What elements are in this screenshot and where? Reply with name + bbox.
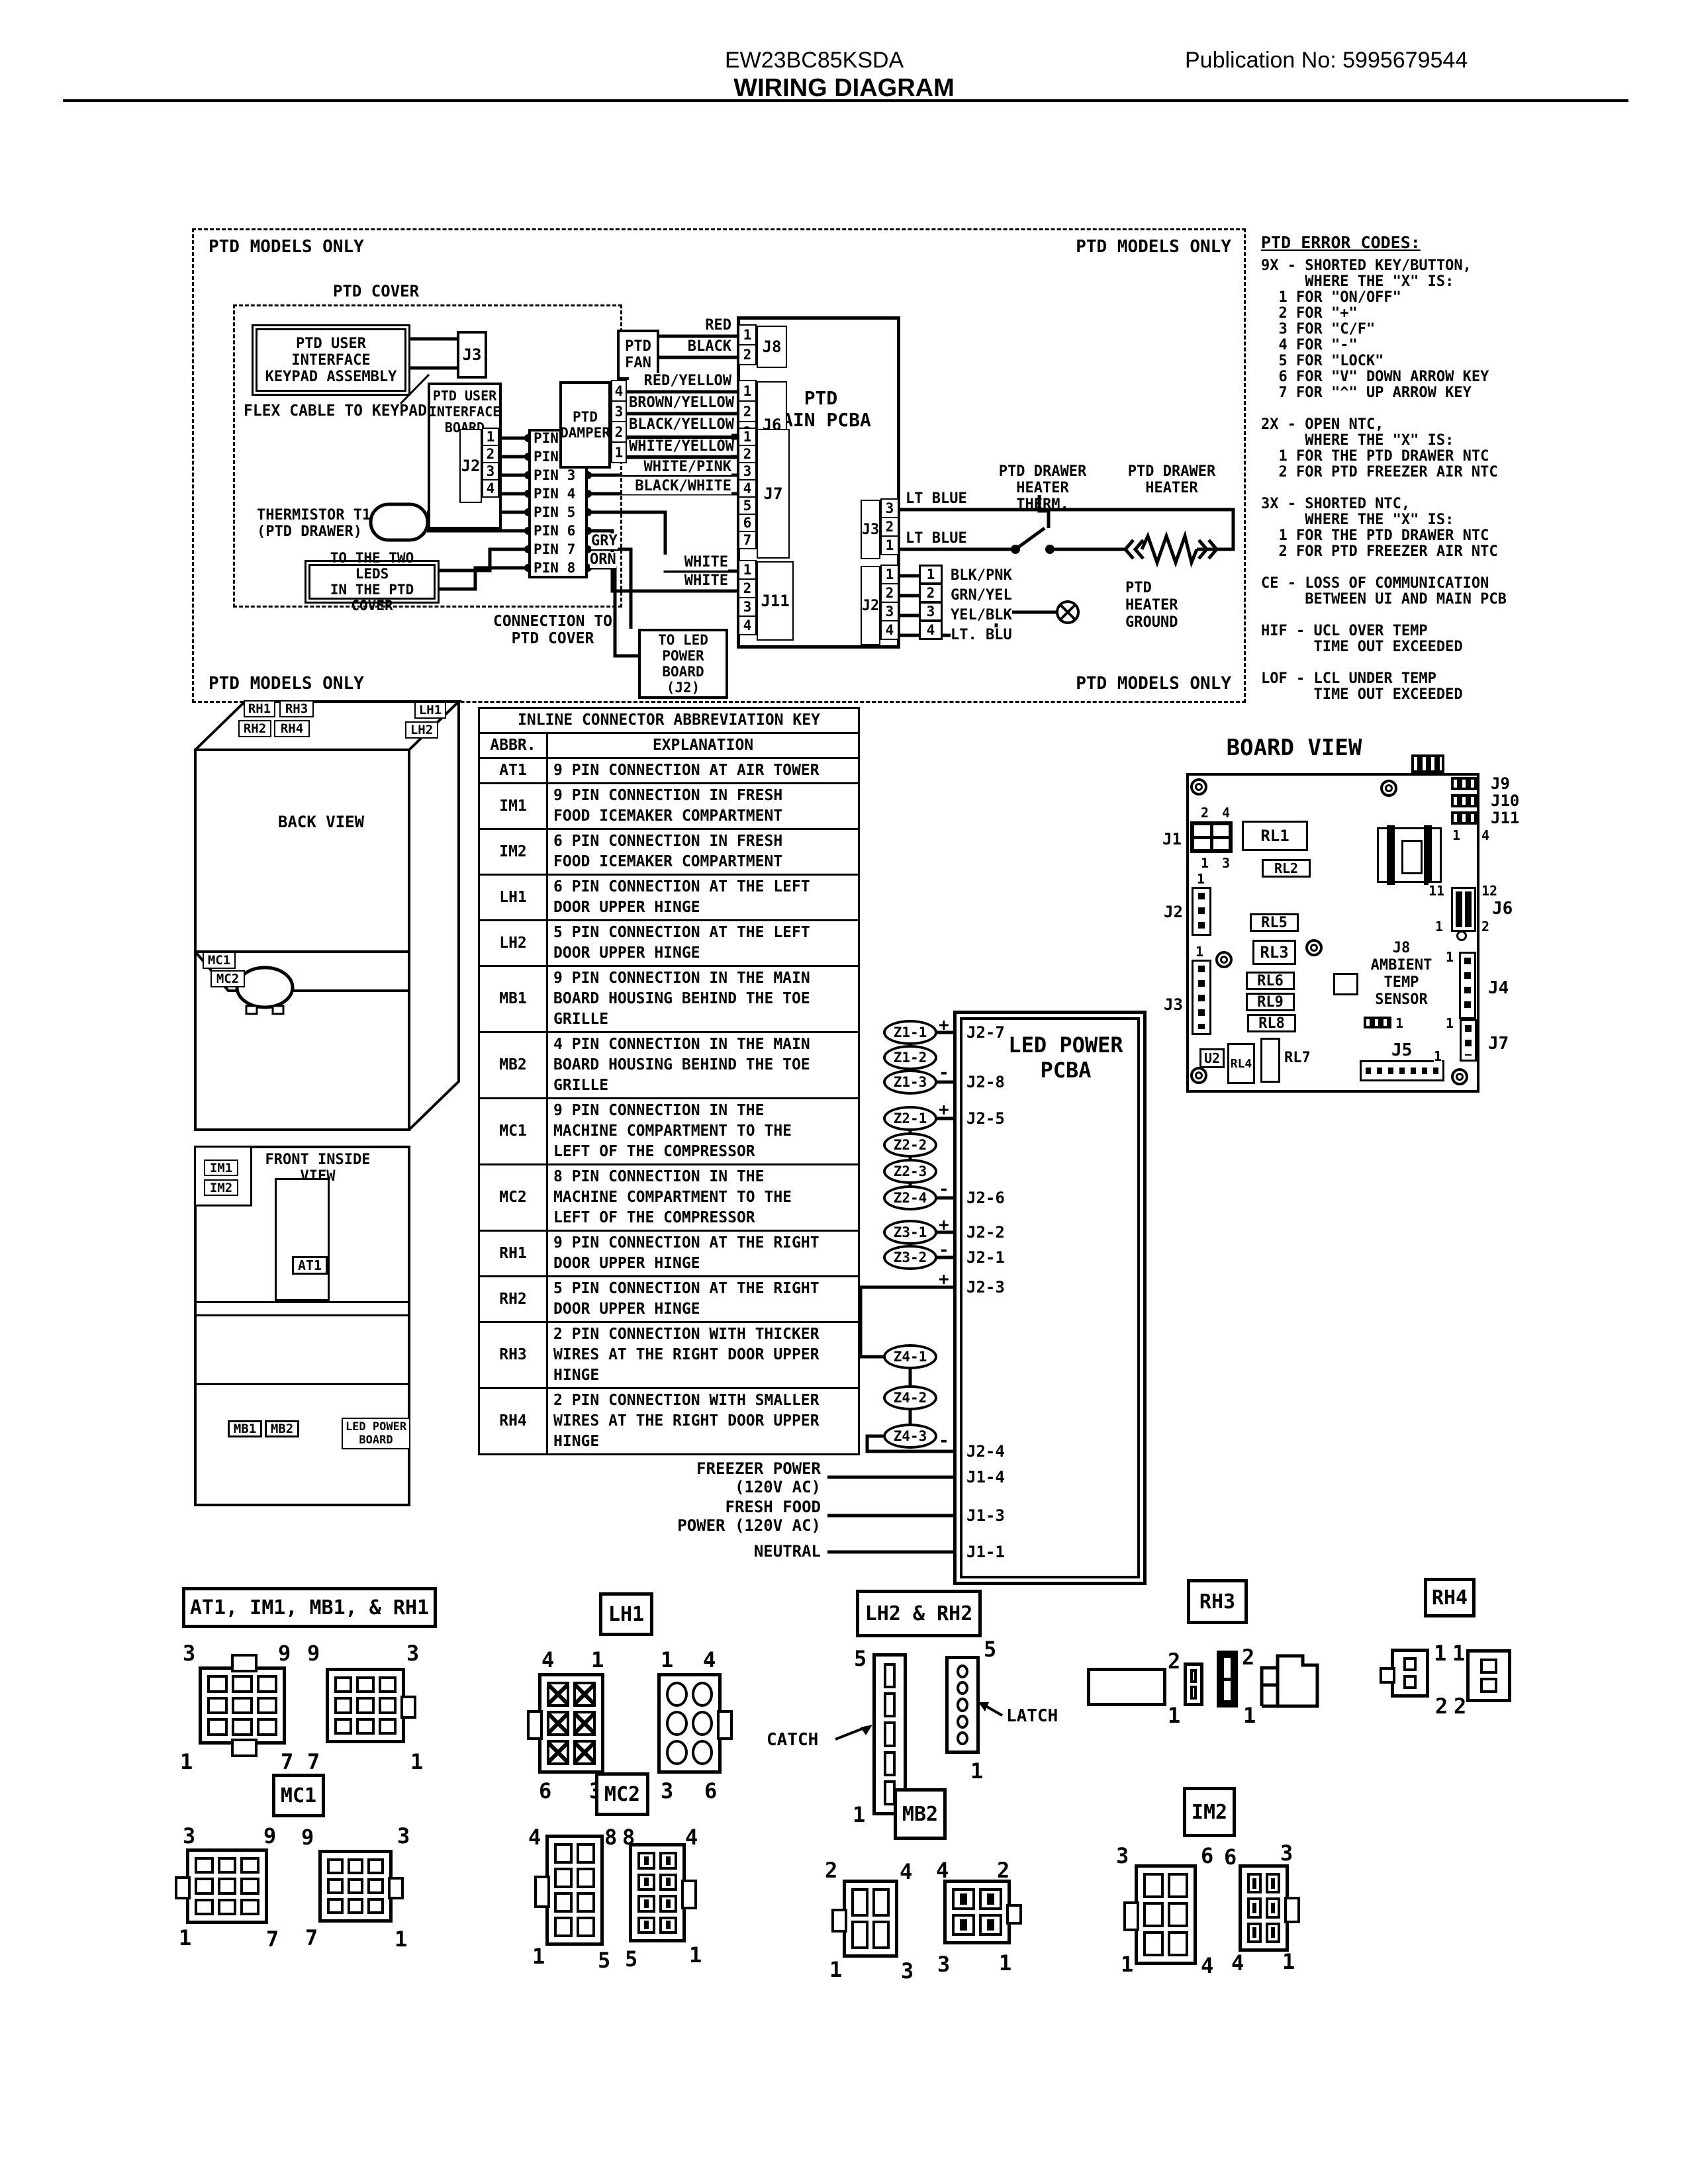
- explanation-cell: 4 PIN CONNECTION IN THE MAIN BOARD HOUSI…: [547, 1032, 859, 1099]
- j2-ui-label: J2: [459, 429, 482, 503]
- back-label-mc2: MC2: [211, 970, 245, 987]
- connector-im2-rear: [1239, 1864, 1289, 1952]
- j2-pcba-label: J2: [861, 566, 880, 645]
- mounting-hole-icon: [1215, 951, 1233, 968]
- pin-number: 1: [829, 1959, 842, 1980]
- port-j2-8: J2-8: [966, 1073, 1005, 1091]
- explanation-cell: 2 PIN CONNECTION WITH THICKER WIRES AT T…: [547, 1322, 859, 1388]
- j11-pin: 2: [738, 578, 757, 598]
- j7-board-connector: [1460, 1019, 1477, 1062]
- pin-cavity: [1168, 1931, 1188, 1956]
- ptd-keypad-assembly: PTD USER INTERFACE KEYPAD ASSEMBLY: [252, 324, 410, 396]
- transformer: [1377, 827, 1442, 883]
- front-divider-3: [194, 1383, 410, 1385]
- polarity-plus-1: +: [939, 1015, 949, 1035]
- pin-cavity: [554, 1892, 573, 1913]
- pin-cavity: [1168, 1873, 1188, 1898]
- pin-cavity: [240, 1857, 259, 1874]
- j6-pin-11: 11: [1429, 883, 1444, 899]
- figure-label-lh2-rh2: LH2 & RH2: [856, 1590, 982, 1637]
- connector-mc1-rear: [318, 1850, 393, 1923]
- pin-cavity: [637, 1852, 655, 1870]
- pin-number: 1: [970, 1760, 983, 1782]
- damper-pin: 1: [611, 441, 627, 463]
- thermistor-label: THERMISTOR T1 (PTD DRAWER): [257, 507, 371, 540]
- pin-number: 1: [180, 1751, 193, 1772]
- pin-number: 1: [1168, 1705, 1180, 1726]
- polarity-minus-2: -: [939, 1179, 949, 1199]
- pin-cavity: [851, 1921, 868, 1949]
- pin-cavity: [232, 1675, 252, 1693]
- abbr-cell: RH1: [479, 1231, 547, 1277]
- pin-cavity: [348, 1858, 364, 1874]
- pin-cavity: [659, 1895, 677, 1913]
- pin-number: 2: [1454, 1696, 1466, 1717]
- pin-cavity: [195, 1899, 214, 1915]
- connection-to-cover-label: CONNECTION TO PTD COVER: [490, 613, 616, 647]
- connector-mc2-rear: [629, 1843, 686, 1942]
- pin-label: PIN 5: [531, 503, 575, 522]
- j2-wire-block-pin: 2: [919, 583, 943, 603]
- pin-cavity: [207, 1697, 228, 1715]
- table-row: LH2 5 PIN CONNECTION AT THE LEFT DOOR UP…: [479, 921, 859, 966]
- pin-cavity: [1213, 839, 1229, 850]
- explanation-cell: 6 PIN CONNECTION AT THE LEFT DOOR UPPER …: [547, 875, 859, 921]
- pin-number: 2: [997, 1860, 1009, 1881]
- wire-white-yellow: WHITE/YELLOW: [629, 439, 731, 455]
- ptd-models-only-bl: PTD MODELS ONLY: [209, 674, 364, 694]
- explanation-cell: 2 PIN CONNECTION WITH SMALLER WIRES AT T…: [547, 1388, 859, 1455]
- table-row: RH3 2 PIN CONNECTION WITH THICKER WIRES …: [479, 1322, 859, 1388]
- j9-connector: [1451, 777, 1477, 790]
- damper-pin: 4: [611, 380, 627, 402]
- zone-z1-1: Z1-1: [883, 1020, 937, 1045]
- j3-board-pin1: 1: [1196, 944, 1203, 960]
- pin-cavity: [692, 1711, 714, 1736]
- pin-number: 7: [281, 1751, 293, 1772]
- j8-pin: 2: [738, 344, 757, 365]
- damper-pin: 3: [611, 400, 627, 422]
- j11-pin: 1: [738, 560, 757, 580]
- j8-label: J8: [757, 326, 787, 368]
- pin-number: 1: [661, 1649, 673, 1670]
- j3-pcba-label: J3: [861, 500, 880, 559]
- wire-brown-yellow: BROWN/YELLOW: [629, 395, 731, 411]
- explanation-column-header: EXPLANATION: [547, 733, 859, 758]
- pin-number: 4: [685, 1827, 698, 1848]
- j2-ui-pin: 2: [482, 445, 499, 463]
- pin-label: PIN 7: [531, 540, 575, 559]
- pin-number: 6: [704, 1780, 717, 1801]
- transformer-core: [1401, 840, 1423, 874]
- pin-cavity: [554, 1868, 573, 1888]
- ambient-sensor-label: J8 AMBIENT TEMP SENSOR: [1362, 940, 1440, 1009]
- pin-number: 4: [703, 1649, 716, 1670]
- j2-ui-pin: 3: [482, 462, 499, 480]
- freezer-power-label: FREEZER POWER (120V AC): [665, 1459, 821, 1496]
- relay-rl7-body: [1260, 1038, 1280, 1083]
- pin-cavity: [195, 1878, 214, 1894]
- pin-cavity: [957, 1731, 968, 1745]
- mounting-hole-icon: [1380, 780, 1397, 797]
- relay-rl2: RL2: [1262, 859, 1311, 878]
- pin-number: 9: [278, 1643, 291, 1664]
- figure-label-mb2: MB2: [894, 1788, 947, 1840]
- table-row: IM2 6 PIN CONNECTION IN FRESH FOOD ICEMA…: [479, 829, 859, 875]
- wire-black-yellow: BLACK/YELLOW: [629, 417, 731, 433]
- table-row: IM1 9 PIN CONNECTION IN FRESH FOOD ICEMA…: [479, 784, 859, 829]
- connector-lh1-rear: [657, 1673, 722, 1774]
- connector-rh3-a: [1184, 1662, 1203, 1706]
- abbr-cell: AT1: [479, 758, 547, 784]
- j7-label: J7: [757, 429, 790, 559]
- figure-label-at1-im1-mb1-rh1: AT1, IM1, MB1, & RH1: [182, 1587, 437, 1628]
- mounting-hole-icon: [1305, 939, 1323, 956]
- pin-cavity: [195, 1857, 214, 1874]
- pin-number: 3: [183, 1643, 195, 1664]
- gry-wire-label: GRY: [591, 533, 618, 549]
- pin-number: 1: [179, 1927, 191, 1948]
- polarity-minus-3: -: [939, 1240, 949, 1260]
- pin-cavity: [952, 1914, 975, 1936]
- model-number: EW23BC85KSDA: [725, 48, 904, 73]
- pin-cavity: [957, 1681, 968, 1695]
- board-view-title: BOARD VIEW: [1211, 735, 1377, 761]
- pin-cavity: [957, 1698, 968, 1711]
- connector-mc2-front: [545, 1835, 604, 1946]
- j3-board-connector: [1192, 960, 1211, 1035]
- pin-number: 9: [307, 1643, 320, 1664]
- pin-number: 6: [539, 1780, 551, 1801]
- pin-number: 3: [1116, 1845, 1129, 1866]
- led-power-pcba-title: LED POWER PCBA: [993, 1032, 1139, 1083]
- pin-cavity: [547, 1711, 569, 1736]
- abbr-cell: IM2: [479, 829, 547, 875]
- figure-label-mc1: MC1: [272, 1774, 325, 1817]
- pin-number: 3: [183, 1825, 195, 1846]
- abbr-column-header: ABBR.: [479, 733, 547, 758]
- explanation-cell: 9 PIN CONNECTION IN FRESH FOOD ICEMAKER …: [547, 784, 859, 829]
- wire-lt-blu: LT. BLU: [951, 627, 1012, 643]
- pin-number: 7: [305, 1927, 318, 1948]
- back-view-title: BACK VIEW: [278, 813, 364, 831]
- connector-at1-rear: [326, 1668, 405, 1743]
- j2-wire-block-pin: 4: [919, 620, 943, 640]
- pin-cavity: [232, 1697, 252, 1715]
- pin-cavity: [327, 1878, 344, 1894]
- j2-wire-block: 1234: [919, 566, 943, 640]
- pin-column: [1465, 891, 1472, 927]
- pin-cavity: [356, 1676, 374, 1693]
- front-divider-2: [194, 1314, 410, 1316]
- back-label-rh2: RH2: [238, 720, 271, 737]
- explanation-cell: 9 PIN CONNECTION IN THE MAIN BOARD HOUSI…: [547, 966, 859, 1032]
- pin-cavity: [257, 1697, 277, 1715]
- transformer-bar: [1424, 825, 1432, 885]
- zone-z2-2: Z2-2: [883, 1132, 937, 1158]
- pin-label: PIN 8: [531, 559, 575, 577]
- pin-number: 3: [937, 1954, 950, 1975]
- drawer-heater-label: PTD DRAWER HEATER: [1119, 463, 1225, 496]
- pin-cavity: [872, 1921, 890, 1949]
- pin-cavity: [1247, 1873, 1262, 1893]
- explanation-cell: 9 PIN CONNECTION AT AIR TOWER: [547, 758, 859, 784]
- table-row: LH1 6 PIN CONNECTION AT THE LEFT DOOR UP…: [479, 875, 859, 921]
- pin-cavity: [547, 1682, 569, 1707]
- wire-black: BLACK: [670, 339, 731, 355]
- pin-number: 1: [1452, 1643, 1465, 1664]
- abbr-cell: RH3: [479, 1322, 547, 1388]
- j7-pin: 1: [738, 428, 757, 446]
- board-3pin-connector: [1364, 1017, 1391, 1028]
- abbr-cell: MB1: [479, 966, 547, 1032]
- abbr-cell: IM1: [479, 784, 547, 829]
- figure-label-rh3: RH3: [1187, 1579, 1248, 1624]
- explanation-cell: 6 PIN CONNECTION IN FRESH FOOD ICEMAKER …: [547, 829, 859, 875]
- pin-cavity: [327, 1858, 344, 1874]
- pin-number: 1: [853, 1804, 865, 1825]
- pin-cavity: [367, 1858, 384, 1874]
- zone-z3-2: Z3-2: [883, 1245, 937, 1270]
- pin-number: 4: [528, 1827, 541, 1848]
- pin-cavity: [666, 1682, 688, 1707]
- front-label-mb1: MB1: [228, 1420, 262, 1437]
- pin-number: 3: [901, 1960, 914, 1981]
- pin-cavity: [1143, 1902, 1164, 1927]
- relay-rl7-label: RL7: [1284, 1050, 1311, 1066]
- pin-cavity: [1143, 1873, 1164, 1898]
- pin-number: 7: [266, 1929, 279, 1950]
- relay-rl8: RL8: [1247, 1014, 1296, 1032]
- ptd-damper: PTD DAMPER: [559, 381, 611, 469]
- pin-number: 4: [541, 1649, 554, 1670]
- board-j7-label: J7: [1488, 1034, 1509, 1054]
- wire-red-yellow: RED/YELLOW: [629, 373, 731, 389]
- pin-cavity: [659, 1852, 677, 1870]
- lt-blue-label-1: LT BLUE: [906, 491, 967, 507]
- icemaker-compartment: [194, 1146, 252, 1206]
- polarity-plus-4: +: [939, 1269, 949, 1289]
- connector-rh4-a: [1391, 1649, 1429, 1698]
- abbreviation-table-title: INLINE CONNECTOR ABBREVIATION KEY: [479, 708, 859, 733]
- zone-z1-3: Z1-3: [883, 1069, 937, 1095]
- pin-number: 8: [622, 1827, 635, 1848]
- pin-number: 6: [1224, 1846, 1237, 1868]
- pin-number: 4: [936, 1860, 949, 1881]
- explanation-cell: 5 PIN CONNECTION AT THE LEFT DOOR UPPER …: [547, 921, 859, 966]
- pin-number: 3: [1280, 1843, 1293, 1864]
- j11-pin-1: 1: [1452, 827, 1460, 843]
- board-ic: [1333, 973, 1358, 995]
- j8-pin: 1: [738, 324, 757, 345]
- board-j9-label: J9: [1491, 774, 1510, 793]
- j1-pin-3: 3: [1222, 855, 1230, 871]
- board-j5-label: J5: [1391, 1040, 1412, 1060]
- neutral-label: NEUTRAL: [665, 1542, 821, 1561]
- pin-number: 8: [604, 1827, 617, 1848]
- pin-cavity: [1247, 1897, 1262, 1918]
- j8-pins: 12: [738, 326, 757, 365]
- two-leds-box: TO THE TWO LEDS IN THE PTD COVER: [305, 560, 440, 604]
- j2-pcba-pin: 1: [880, 565, 899, 584]
- pin-cavity: [659, 1917, 677, 1934]
- j3-pcba-pin: 1: [880, 535, 899, 555]
- pin-number: 9: [301, 1827, 314, 1848]
- port-j1-3: J1-3: [966, 1506, 1005, 1525]
- j11-pins: 1234: [738, 561, 757, 635]
- relay-rl9: RL9: [1246, 993, 1295, 1011]
- j3-pcba-pins: 321: [880, 500, 899, 555]
- j6-pin-1: 1: [1435, 919, 1443, 934]
- j4-board-connector: [1459, 952, 1476, 1019]
- polarity-plus-2: +: [939, 1100, 949, 1120]
- figure-label-im2: IM2: [1183, 1787, 1236, 1837]
- table-row: RH4 2 PIN CONNECTION WITH SMALLER WIRES …: [479, 1388, 859, 1455]
- port-j1-1: J1-1: [966, 1543, 1005, 1561]
- mounting-hole-icon: [1451, 1068, 1468, 1085]
- explanation-cell: 9 PIN CONNECTION AT THE RIGHT DOOR UPPER…: [547, 1231, 859, 1277]
- mounting-hole-icon: [1190, 778, 1207, 796]
- connector-rh2-latch: [945, 1656, 980, 1754]
- back-label-rh1: RH1: [244, 700, 275, 717]
- fresh-food-power-label: FRESH FOOD POWER (120V AC): [665, 1498, 821, 1535]
- zone-z4-3: Z4-3: [883, 1424, 937, 1449]
- pin-cavity: [218, 1878, 237, 1894]
- pin-cavity: [573, 1740, 596, 1765]
- pin-number: 4: [1231, 1952, 1244, 1974]
- pin-cavity: [884, 1663, 896, 1688]
- back-label-rh4: RH4: [274, 720, 310, 737]
- pin-cavity: [218, 1899, 237, 1915]
- pin-number: 4: [1201, 1955, 1213, 1976]
- relay-rl5: RL5: [1250, 913, 1299, 932]
- pin-number: 1: [532, 1946, 545, 1967]
- connector-rh4-b: [1466, 1649, 1511, 1702]
- j6-pin-2: 2: [1481, 919, 1489, 934]
- pin-cavity: [577, 1843, 595, 1864]
- pin-cavity: [1143, 1931, 1164, 1956]
- front-label-im1: IM1: [204, 1160, 238, 1176]
- j3-pcba-pin: 2: [880, 517, 899, 537]
- publication-number: Publication No: 5995679544: [1185, 48, 1468, 73]
- wire-black-white: BLACK/WHITE: [622, 478, 731, 494]
- title-rule: [63, 99, 1628, 102]
- pin-cavity: [1266, 1873, 1280, 1893]
- pin-number: 1: [999, 1952, 1011, 1974]
- pin-cavity: [367, 1898, 384, 1914]
- pin-cavity: [1213, 825, 1229, 836]
- abbr-cell: LH2: [479, 921, 547, 966]
- table-row: AT1 9 PIN CONNECTION AT AIR TOWER: [479, 758, 859, 784]
- port-j2-7: J2-7: [966, 1023, 1005, 1042]
- j7-pin-1: 1: [1446, 1015, 1454, 1031]
- pin-number: 7: [307, 1751, 320, 1772]
- pin-cavity: [554, 1917, 573, 1937]
- pin-number: 1: [1121, 1954, 1133, 1975]
- pin-number: 4: [900, 1861, 912, 1882]
- j7-pin: 3: [738, 462, 757, 480]
- port-j2-3: J2-3: [966, 1278, 1005, 1297]
- pin-cavity: [1168, 1902, 1188, 1927]
- abbr-cell: RH4: [479, 1388, 547, 1455]
- connector-mc1-front: [186, 1848, 268, 1924]
- front-label-mb2: MB2: [265, 1420, 299, 1437]
- to-led-power-board-box: TO LED POWER BOARD (J2): [638, 629, 728, 699]
- wire-yel-blk: YEL/BLK: [951, 608, 1012, 623]
- ptd-cover-label: PTD COVER: [328, 282, 424, 300]
- j7-pins: 1234567: [738, 429, 757, 549]
- pin-cavity: [257, 1675, 277, 1693]
- ptd-models-only-tr: PTD MODELS ONLY: [1056, 237, 1231, 257]
- wire-grn-yel: GRN/YEL: [951, 588, 1012, 604]
- pin-cavity: [207, 1675, 228, 1693]
- relay-rl6: RL6: [1246, 972, 1295, 990]
- pin-cavity: [884, 1692, 896, 1717]
- pin-number: 6: [1201, 1845, 1213, 1866]
- pin-number: 2: [825, 1860, 837, 1881]
- pin-number: 1: [410, 1751, 423, 1772]
- pin-cavity: [637, 1895, 655, 1913]
- pin-cavity: [240, 1899, 259, 1915]
- heater-ground-label: PTD HEATER GROUND: [1125, 580, 1205, 631]
- pin-number: 5: [984, 1639, 996, 1660]
- back-label-mc1: MC1: [203, 952, 236, 969]
- pin-number: 5: [854, 1648, 867, 1669]
- j7-pin: 2: [738, 445, 757, 463]
- pin-cavity: [240, 1878, 259, 1894]
- zone-z2-4: Z2-4: [883, 1185, 937, 1210]
- pin-number: 1: [1243, 1705, 1256, 1726]
- j3-connector: J3: [457, 331, 487, 379]
- connector-at1-front: [199, 1666, 286, 1745]
- explanation-cell: 9 PIN CONNECTION IN THE MACHINE COMPARTM…: [547, 1099, 859, 1165]
- j1-connector: [1190, 821, 1233, 853]
- front-divider-1: [194, 1301, 410, 1303]
- board-j2-label: J2: [1164, 903, 1183, 921]
- connector-mb2-rear: [943, 1880, 1011, 1944]
- j10-connector: [1451, 794, 1477, 807]
- j2-board-pin1: 1: [1197, 871, 1205, 887]
- pin-cavity: [692, 1740, 714, 1765]
- chip-u2: U2: [1199, 1048, 1225, 1068]
- pin-cavity: [348, 1878, 364, 1894]
- board-top-connector: [1411, 754, 1444, 773]
- pin-cavity: [1480, 1659, 1497, 1674]
- board-3pin-1: 1: [1395, 1015, 1403, 1031]
- pin-number: 9: [263, 1825, 276, 1846]
- wire-blk-pnk: BLK/PNK: [951, 568, 1012, 584]
- j2-wire-block-pin: 3: [919, 602, 943, 621]
- j6-board-connector: [1451, 887, 1476, 932]
- error-codes-heading: PTD ERROR CODES:: [1261, 233, 1421, 252]
- air-tower: [275, 1178, 330, 1301]
- board-j10-label: J10: [1491, 792, 1519, 810]
- pin-cavity: [979, 1888, 1002, 1910]
- catch-label: CATCH: [767, 1730, 818, 1750]
- j1-pin-4: 4: [1222, 805, 1230, 821]
- connector-rh3-b: [1217, 1651, 1238, 1707]
- j2-pcba-pin: 3: [880, 602, 899, 621]
- j6-pin: 2: [738, 400, 757, 422]
- latch-label: LATCH: [1006, 1706, 1058, 1726]
- pin-cavity: [327, 1898, 344, 1914]
- j11-pin: 3: [738, 597, 757, 617]
- board-j4-label: J4: [1488, 978, 1509, 998]
- pin-cavity: [356, 1718, 374, 1735]
- board-j6-label: J6: [1492, 899, 1513, 919]
- pin-cavity: [666, 1740, 688, 1765]
- pin-cavity: [1266, 1897, 1280, 1918]
